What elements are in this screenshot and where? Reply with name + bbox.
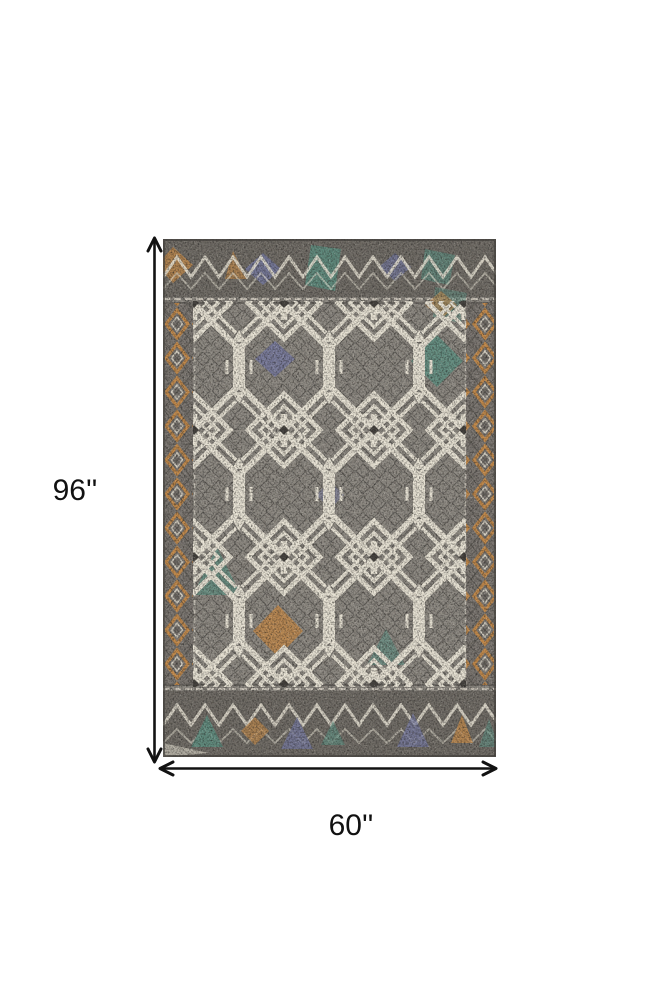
height-label: 96'' <box>36 474 114 508</box>
rug-body <box>163 239 496 757</box>
horizontal-double-arrow-icon <box>155 753 501 783</box>
product-dimension-image: 96'' 60'' <box>0 0 659 1000</box>
width-label: 60'' <box>312 809 390 843</box>
rug-image <box>163 239 496 757</box>
